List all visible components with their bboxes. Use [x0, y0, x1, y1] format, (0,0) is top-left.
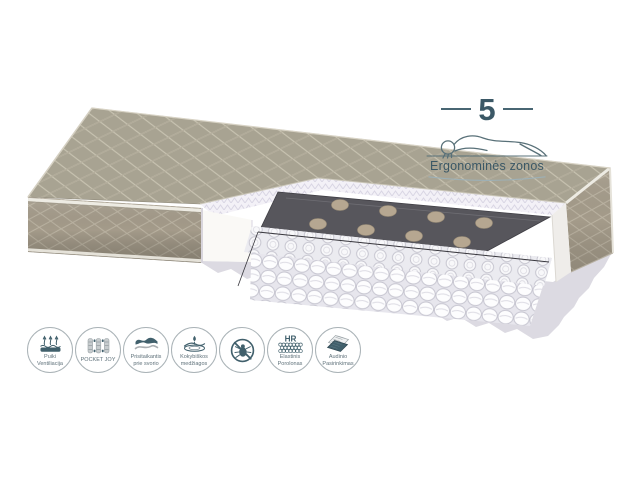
feature-quality-materials: Kokybiškos medžiagos	[171, 327, 217, 373]
feature-pocket-joy: POCKET JOY	[75, 327, 121, 373]
no-dustmite-icon	[228, 336, 257, 365]
pocket-springs-icon	[85, 336, 112, 356]
zones-label: Ergonominės zonos	[417, 159, 557, 173]
mattress-front-face	[28, 197, 202, 263]
adaptive-mattress-icon	[133, 333, 160, 353]
foam-wall-left	[202, 208, 252, 263]
feature-anti-dustmite	[219, 327, 265, 373]
zones-count: 5	[478, 94, 495, 125]
feature-icon-row: Puiki Ventiliacija	[27, 327, 361, 373]
ergonomic-zones-badge: 5 Ergonominės zonos	[417, 92, 557, 184]
sleeping-person-icon	[424, 126, 550, 160]
feature-label: Puiki Ventiliacija	[31, 354, 69, 366]
zones-count-row: 5	[417, 92, 557, 126]
feature-label: POCKET JOY	[81, 357, 116, 363]
feature-label: Kokybiškos medžiagos	[175, 354, 213, 366]
mattress-illustration	[0, 0, 640, 480]
feature-label: Prisitaikantis prie svorio	[127, 354, 165, 366]
fabric-swatches-icon	[325, 333, 352, 353]
feature-weight-adapt: Prisitaikantis prie svorio	[123, 327, 169, 373]
product-image: 5 Ergonominės zonos	[0, 0, 640, 480]
feature-fabric-choice: Audinio Pasirinkimas	[315, 327, 361, 373]
rule-left	[441, 108, 471, 110]
hr-foam-icon: HR	[277, 333, 304, 353]
hr-glyph-text: HR	[284, 335, 296, 344]
zones-underline	[420, 175, 554, 184]
feature-hr-foam: HR Elastinis Porolonas	[267, 327, 313, 373]
feature-ventilation: Puiki Ventiliacija	[27, 327, 73, 373]
water-drop-hand-icon	[181, 333, 208, 353]
ventilation-icon	[37, 333, 64, 353]
feature-label: Elastinis Porolonas	[271, 354, 309, 366]
feature-label: Audinio Pasirinkimas	[319, 354, 357, 366]
rule-right	[503, 108, 533, 110]
